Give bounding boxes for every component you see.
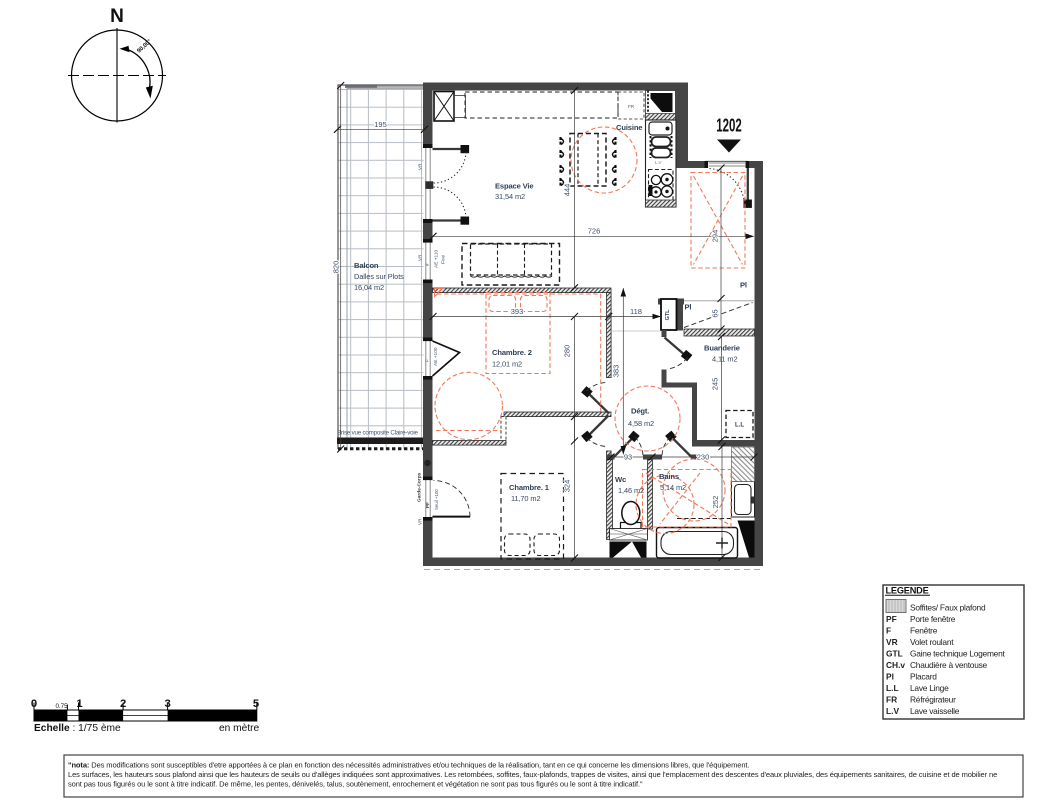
svg-text:sont pas tous figurés ou le so: sont pas tous figurés ou le sont à titre… xyxy=(68,780,643,789)
svg-text:1: 1 xyxy=(76,698,82,710)
svg-text:en mètre: en mètre xyxy=(219,723,260,734)
svg-text:PF: PF xyxy=(886,614,897,624)
svg-text:FR: FR xyxy=(628,104,635,109)
svg-text:Porte fenêtre: Porte fenêtre xyxy=(910,614,956,624)
svg-text:252: 252 xyxy=(711,496,720,509)
svg-text:Pl: Pl xyxy=(685,303,692,312)
svg-text:93: 93 xyxy=(624,453,632,462)
svg-text:280: 280 xyxy=(563,345,572,358)
svg-text:Les surfaces, les hauteurs sou: Les surfaces, les hauteurs sous plafond … xyxy=(68,770,997,779)
svg-text:230: 230 xyxy=(697,453,710,462)
svg-text:2: 2 xyxy=(120,698,126,710)
svg-text:VR: VR xyxy=(418,163,423,170)
svg-text:118: 118 xyxy=(630,307,642,316)
svg-text:Volet roulant: Volet roulant xyxy=(910,637,954,647)
svg-text:31,54 m2: 31,54 m2 xyxy=(495,192,525,201)
svg-text:Chambre. 1: Chambre. 1 xyxy=(509,483,550,492)
svg-text:Gaine technique Logement: Gaine technique Logement xyxy=(910,649,1005,659)
svg-text:Pl: Pl xyxy=(740,281,747,290)
svg-text:L.L: L.L xyxy=(735,423,744,429)
svg-text:0: 0 xyxy=(31,698,37,710)
svg-text:245: 245 xyxy=(711,378,720,391)
svg-text:1,46 m2: 1,46 m2 xyxy=(618,486,644,495)
svg-text:Echelle : 1/75 ème: Echelle : 1/75 ème xyxy=(34,723,121,734)
svg-text:VR: VR xyxy=(418,518,423,525)
svg-text:PF: PF xyxy=(425,502,430,508)
svg-text:Balcon: Balcon xyxy=(354,261,379,270)
svg-text:1202: 1202 xyxy=(716,115,742,136)
svg-text:Réfrégirateur: Réfrégirateur xyxy=(910,695,956,705)
svg-text:16,04 m2: 16,04 m2 xyxy=(354,283,384,292)
svg-text:Bains: Bains xyxy=(659,472,679,481)
svg-text:Lave Linge: Lave Linge xyxy=(910,683,949,693)
svg-text:Chambre. 2: Chambre. 2 xyxy=(492,348,532,357)
svg-text:L.V: L.V xyxy=(655,160,662,165)
svg-text:Lave vaisselle: Lave vaisselle xyxy=(910,706,960,716)
svg-text:12,01 m2: 12,01 m2 xyxy=(492,360,522,369)
svg-text:324: 324 xyxy=(563,480,572,493)
svg-text:Espace Vie: Espace Vie xyxy=(495,182,533,191)
svg-text:Fixe: Fixe xyxy=(441,255,447,264)
svg-text:#: # xyxy=(425,263,430,266)
svg-text:Brise vue composite Claire-voi: Brise vue composite Claire-voie xyxy=(337,430,419,437)
svg-text:195: 195 xyxy=(374,120,387,129)
svg-text:Placard: Placard xyxy=(910,672,937,682)
svg-text:Wc: Wc xyxy=(615,475,626,484)
svg-text:Chaudière à ventouse: Chaudière à ventouse xyxy=(910,660,988,670)
svg-text:N: N xyxy=(110,6,124,27)
svg-text:Seuil +100: Seuil +100 xyxy=(434,489,439,510)
svg-text:VR: VR xyxy=(886,637,898,647)
svg-text:Soffites/ Faux plafond: Soffites/ Faux plafond xyxy=(910,603,986,613)
svg-text:4,11 m2: 4,11 m2 xyxy=(712,355,737,364)
svg-text:Dalles sur Plots: Dalles sur Plots xyxy=(354,272,404,281)
svg-text:LEGENDE: LEGENDE xyxy=(886,586,929,596)
svg-text:393: 393 xyxy=(511,307,524,316)
svg-text:FR: FR xyxy=(886,695,897,705)
svg-text:Fenêtre: Fenêtre xyxy=(910,626,938,636)
svg-text:VR: VR xyxy=(418,254,423,261)
svg-text:F: F xyxy=(425,359,430,362)
svg-text:Buanderie: Buanderie xyxy=(704,344,740,353)
svg-text:65: 65 xyxy=(711,309,720,317)
svg-text:3: 3 xyxy=(164,698,170,710)
svg-text:5,14 m2: 5,14 m2 xyxy=(660,483,686,492)
svg-text:CH.v: CH.v xyxy=(886,660,905,670)
svg-text:726: 726 xyxy=(588,227,601,236)
svg-text:F: F xyxy=(886,626,891,636)
svg-text:Cuisine: Cuisine xyxy=(616,123,642,132)
svg-text:"nota: Des modifications sont: "nota: Des modifications sont susceptibl… xyxy=(68,761,749,770)
svg-text:GTL: GTL xyxy=(886,649,903,659)
svg-text:0.75: 0.75 xyxy=(55,703,68,710)
svg-text:AE +100: AE +100 xyxy=(433,347,439,366)
svg-text:4,58 m2: 4,58 m2 xyxy=(628,419,654,428)
svg-text:Dégt.: Dégt. xyxy=(631,407,649,416)
svg-text:Pl: Pl xyxy=(886,672,894,682)
svg-text:294: 294 xyxy=(711,230,720,243)
svg-text:AE +110: AE +110 xyxy=(434,249,440,268)
svg-text:820: 820 xyxy=(332,261,341,274)
svg-text:5: 5 xyxy=(253,698,259,710)
svg-text:L.V: L.V xyxy=(886,706,899,716)
svg-text:Garde-Corps: Garde-Corps xyxy=(417,472,423,502)
svg-text:383: 383 xyxy=(612,365,621,378)
svg-text:444: 444 xyxy=(563,184,572,197)
svg-text:11,70 m2: 11,70 m2 xyxy=(511,494,540,503)
svg-text:GTL: GTL xyxy=(665,309,671,320)
svg-text:L.L: L.L xyxy=(886,683,899,693)
